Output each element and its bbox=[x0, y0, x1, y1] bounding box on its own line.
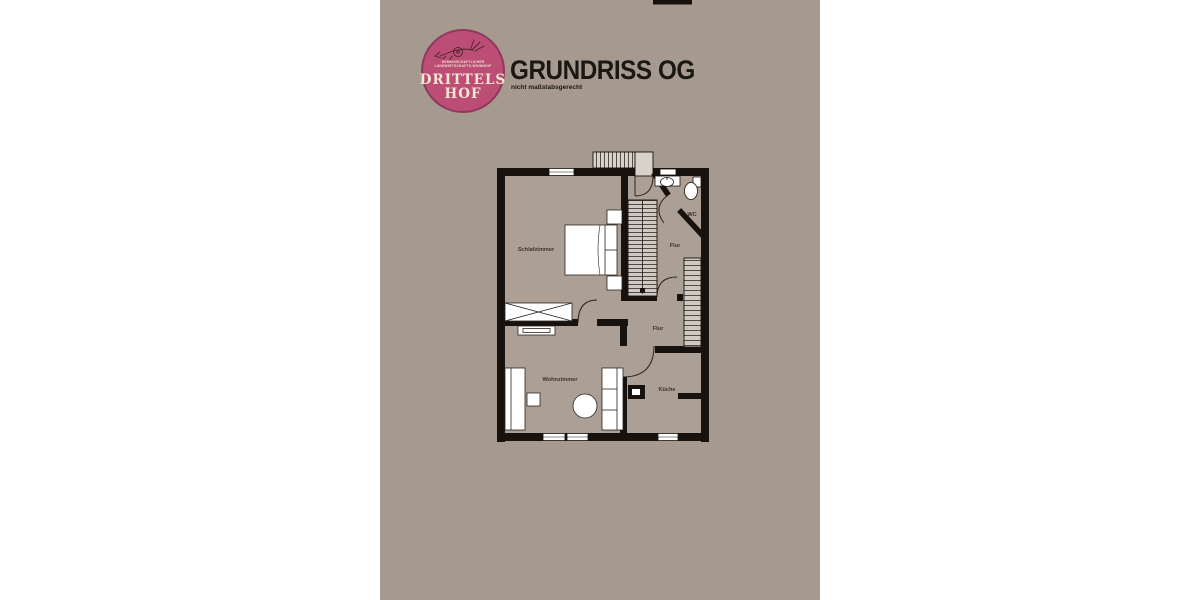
label-wc: WC bbox=[687, 212, 696, 218]
nightstand-top bbox=[607, 210, 622, 224]
label-kitchen: Küche bbox=[658, 387, 675, 393]
sofa bbox=[602, 368, 623, 430]
entry-landing bbox=[635, 152, 653, 176]
stair-lower bbox=[684, 258, 701, 347]
top-edge-crop-mark bbox=[653, 0, 692, 5]
stair-upper bbox=[628, 200, 657, 296]
nightstand-bottom bbox=[607, 276, 622, 290]
window-wc bbox=[660, 169, 676, 175]
floorplan: Schlafzimmer Wohnzimmer Flur Flur Küche … bbox=[497, 152, 709, 442]
page-subtitle: nicht maßstabsgerecht bbox=[511, 84, 583, 91]
label-bedroom: Schlafzimmer bbox=[518, 247, 555, 253]
floorplan-poster: GEMEINSCHAFTLICHER LANDWIRTSCHAFTS-WOHNH… bbox=[380, 0, 820, 600]
sideboard-left bbox=[505, 368, 525, 430]
logo-name-line2: HOF bbox=[444, 86, 481, 102]
page-title: GRUNDRISS OG bbox=[510, 56, 695, 85]
page: GEMEINSCHAFTLICHER LANDWIRTSCHAFTS-WOHNH… bbox=[0, 0, 1200, 600]
logo-micro-text-line2: LANDWIRTSCHAFTS-WOHNHOF bbox=[435, 64, 492, 68]
chimney bbox=[628, 385, 645, 399]
round-table bbox=[573, 394, 597, 418]
label-hall-lower: Flur bbox=[653, 326, 664, 332]
logo-badge: GEMEINSCHAFTLICHER LANDWIRTSCHAFTS-WOHNH… bbox=[420, 30, 506, 112]
side-table bbox=[527, 393, 540, 406]
poster-panel: GEMEINSCHAFTLICHER LANDWIRTSCHAFTS-WOHNH… bbox=[380, 0, 820, 600]
label-living: Wohnzimmer bbox=[542, 377, 578, 383]
toilet-bowl bbox=[685, 183, 698, 200]
label-hall-upper: Flur bbox=[670, 243, 681, 249]
